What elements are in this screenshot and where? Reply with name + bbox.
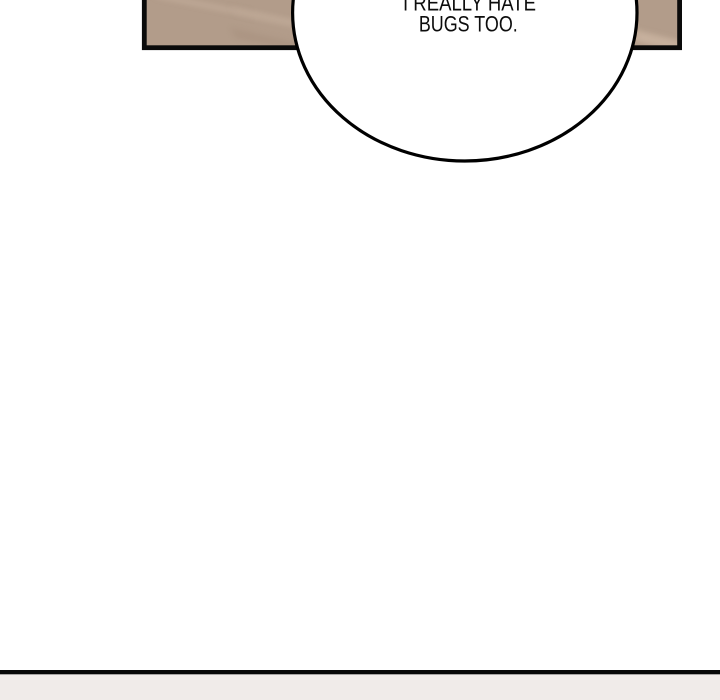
svg-text:BUGS TOO.: BUGS TOO. bbox=[419, 13, 518, 37]
